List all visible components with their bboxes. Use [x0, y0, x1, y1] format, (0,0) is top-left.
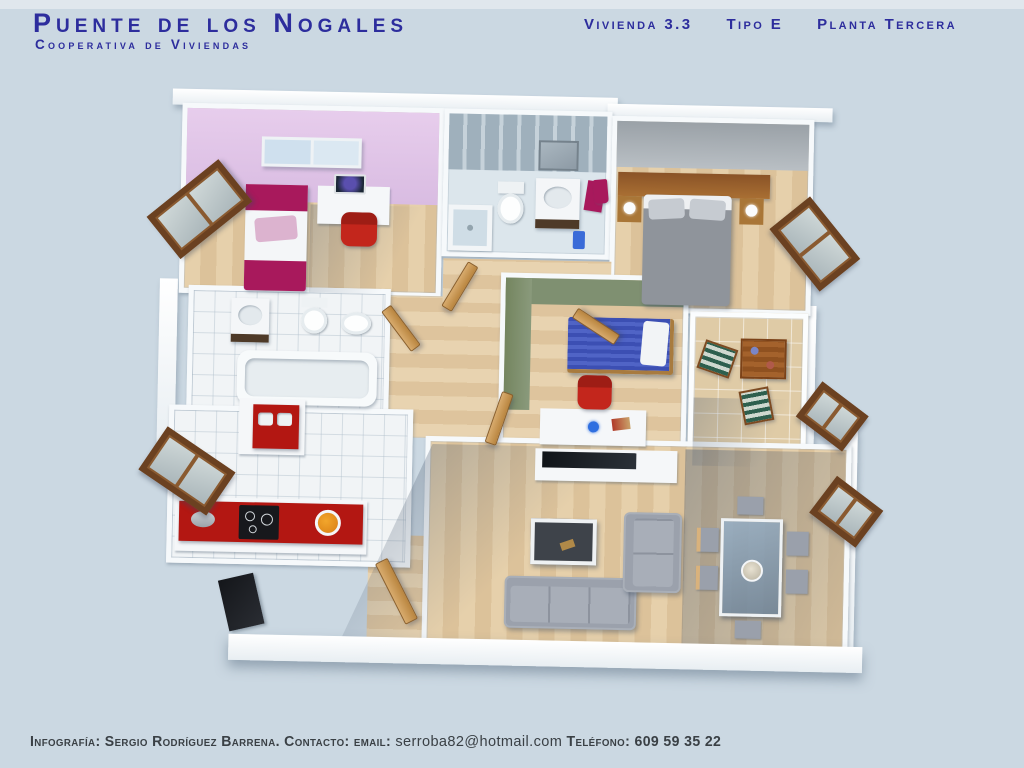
sofa-cushions — [633, 518, 674, 587]
shower-drain — [467, 225, 473, 231]
coffee-table — [530, 518, 597, 565]
cup — [766, 361, 774, 369]
sink-bowl — [258, 412, 273, 425]
table-lamp — [623, 202, 635, 214]
desk-lamp-blue — [588, 421, 599, 432]
sofa-three-seat — [504, 576, 637, 631]
office-chair — [577, 375, 612, 410]
plan-meta: Vivienda 3.3 Tipo E Planta Tercera — [584, 16, 957, 33]
phone-label: Teléfono: — [567, 734, 631, 750]
bedroom-master-wall — [616, 121, 809, 171]
cup — [751, 347, 759, 355]
induction-hob — [239, 505, 280, 540]
sofa-cushions — [510, 586, 631, 625]
dining-chair — [737, 496, 763, 515]
single-bed-headboard — [245, 184, 308, 211]
table-lamp — [745, 205, 757, 217]
pillow — [640, 321, 670, 367]
dining-chair — [735, 620, 761, 639]
kitchen-sink-counter — [252, 404, 299, 449]
sink-bowl — [544, 186, 572, 209]
page: { "header": { "title": "Puente de los No… — [0, 0, 1024, 768]
nightstand — [617, 196, 642, 222]
page-subtitle: Cooperativa de Viviendas — [35, 37, 251, 52]
chair-back — [341, 212, 377, 225]
dining-chair — [786, 531, 808, 555]
hob-ring — [245, 511, 255, 521]
nightstand — [739, 198, 764, 224]
serving-bowl — [741, 560, 763, 582]
type-label: Tipo E — [726, 16, 783, 33]
double-bed — [642, 194, 732, 306]
sink-bowl — [238, 305, 262, 325]
floor-label: Planta Tercera — [817, 16, 957, 33]
laundry-basket — [573, 231, 585, 249]
sink-bowl — [277, 413, 292, 426]
bathtub-basin — [245, 358, 370, 399]
vanity-sink — [231, 298, 270, 343]
tv-sideboard — [535, 448, 678, 483]
dining-chair — [696, 528, 718, 552]
desk — [540, 408, 647, 446]
phone-number: 609 59 35 22 — [634, 734, 721, 750]
shelf-panel — [264, 139, 310, 164]
bedroom-green-wall-left — [503, 278, 532, 411]
pillow — [689, 198, 726, 221]
single-bed-blanket — [244, 260, 307, 291]
dining-chair — [696, 566, 718, 590]
deck-chair — [739, 386, 775, 425]
sofa-two-seat — [623, 512, 683, 593]
vanity-sink — [535, 178, 580, 229]
toilet-tank — [301, 297, 327, 308]
shower — [448, 204, 493, 251]
hob-ring — [249, 525, 257, 533]
toilet-tank — [498, 181, 524, 194]
footer-credits: Infografía: Sergio Rodríguez Barrena. Co… — [30, 733, 721, 750]
single-bed-pillow — [254, 215, 298, 242]
dining-chair — [786, 569, 808, 593]
remote-control — [560, 539, 576, 551]
vanity-mirror — [538, 140, 579, 171]
header: Puente de los Nogales Cooperativa de Viv… — [0, 0, 1024, 60]
wall-shelf — [261, 136, 362, 168]
credit-text: Infografía: Sergio Rodríguez Barrena. Co… — [30, 734, 391, 750]
book — [611, 417, 630, 431]
chair-back — [578, 375, 612, 388]
imac-computer — [334, 174, 366, 195]
page-title: Puente de los Nogales — [33, 8, 408, 39]
doormat — [218, 573, 265, 632]
dining-table — [719, 518, 783, 617]
pillow — [648, 198, 685, 220]
contact-email: serroba82@hotmail.com — [395, 733, 562, 750]
terrace-table — [740, 338, 787, 379]
unit-label: Vivienda 3.3 — [584, 16, 692, 33]
tv — [542, 451, 636, 469]
clothes-valet — [593, 179, 609, 204]
office-chair — [341, 212, 378, 247]
shelf-panel — [313, 140, 359, 165]
hob-ring — [261, 513, 273, 525]
fruit-bowl — [315, 510, 342, 537]
floor-plan — [135, 86, 888, 711]
bathroom-a-tiles — [448, 113, 607, 172]
